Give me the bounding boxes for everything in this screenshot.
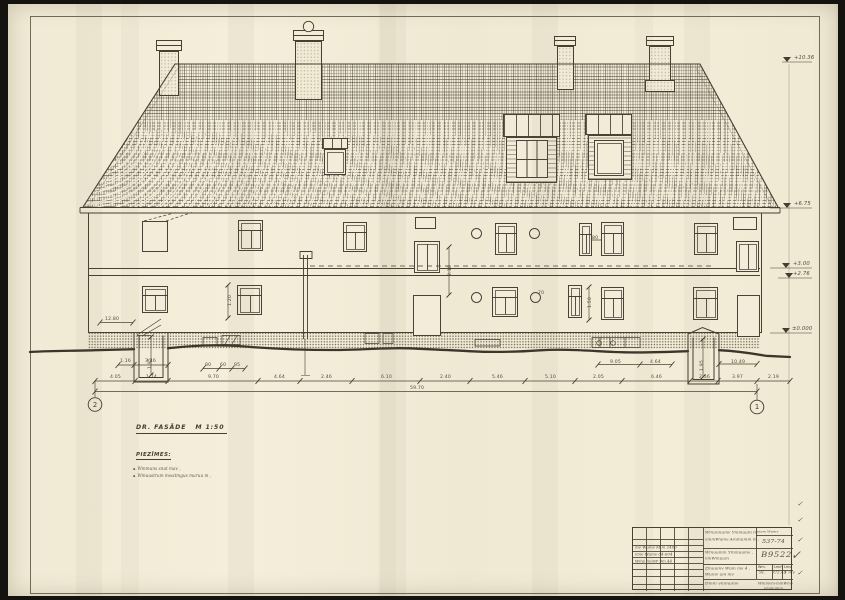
- chk-label: ✓: [797, 500, 803, 508]
- dim-label: 1.74: [146, 375, 157, 380]
- lvl-label: +2.76: [793, 271, 810, 277]
- chk-label: ✓: [797, 569, 803, 577]
- dim-label: 6.10: [381, 375, 392, 380]
- dim-label: 59.70: [410, 386, 424, 391]
- chk-label: ✓: [797, 516, 803, 524]
- lvl-label: +10.36: [794, 55, 814, 61]
- lvl-label: +3.00: [793, 261, 810, 267]
- dim-label: 1.16: [120, 359, 131, 364]
- dim-label: 95: [234, 363, 240, 368]
- scanned-drawing-sheet: DR. FASĀDE M 1:50 PIEZĪMES: Wmmuns snut …: [0, 0, 845, 600]
- chk-label: ✓: [797, 536, 803, 544]
- dim-label: 9.70: [208, 375, 219, 380]
- annotation-text-layer: 4.051.749.704.642.466.102.405.465.102.05…: [0, 0, 845, 600]
- dim-label: 5.10: [545, 375, 556, 380]
- dim-label: 2.19: [768, 375, 779, 380]
- dim-label: 4.05: [110, 375, 121, 380]
- dim-label: 1.95: [148, 358, 153, 369]
- dim-label: 10.49: [731, 360, 745, 365]
- dim-label: 1.20: [228, 295, 233, 306]
- dim-label: 70: [538, 291, 544, 296]
- dim-label: 6.46: [651, 375, 662, 380]
- dim-label: 1.95: [700, 360, 705, 371]
- dim-label: 80: [592, 236, 598, 241]
- lvl-label: +6.75: [794, 201, 811, 207]
- dim-label: 2.46: [321, 375, 332, 380]
- dim-label: 60: [220, 363, 226, 368]
- dim-label: 3.97: [732, 375, 743, 380]
- dim-label: 2.10: [448, 265, 453, 276]
- dim-label: 9.05: [610, 360, 621, 365]
- dim-label: 2.56: [699, 375, 710, 380]
- lvl-label: ±0.000: [792, 326, 812, 332]
- dim-label: 12.80: [105, 317, 119, 322]
- dim-label: 1.50: [588, 297, 593, 308]
- dim-label: 2.40: [440, 375, 451, 380]
- dim-label: 4.64: [650, 360, 661, 365]
- dim-label: 4.64: [274, 375, 285, 380]
- dim-label: 5.46: [492, 375, 503, 380]
- dim-label: 2.05: [593, 375, 604, 380]
- chk-label: ✓: [791, 548, 801, 562]
- dim-label: 80: [205, 363, 211, 368]
